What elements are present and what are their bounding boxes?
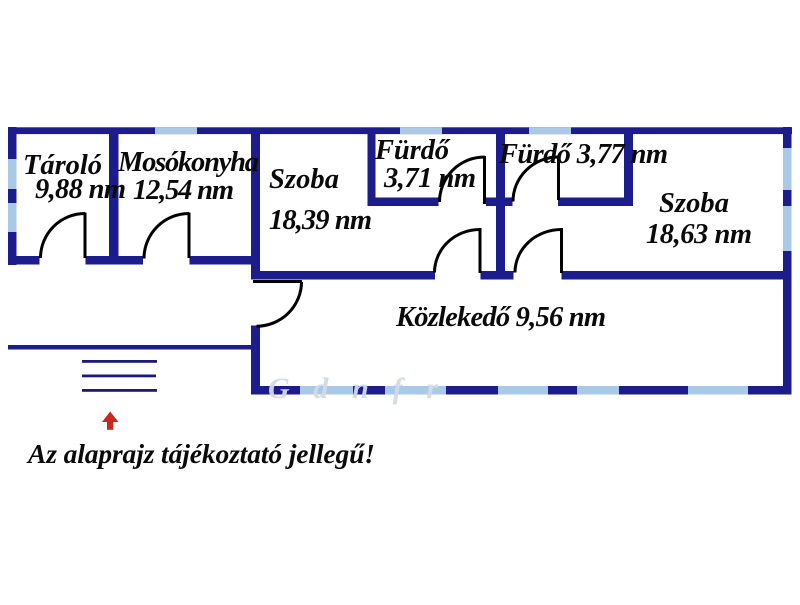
svg-text:12,54 nm: 12,54 nm <box>133 175 234 206</box>
svg-text:Fürdő: Fürdő <box>374 135 451 166</box>
svg-text:9,88 nm: 9,88 nm <box>35 174 126 205</box>
svg-text:18,63 nm: 18,63 nm <box>646 219 752 250</box>
svg-text:Fürdő 3,77 nm: Fürdő 3,77 nm <box>498 139 668 170</box>
svg-text:Az alaprajz tájékoztató jelleg: Az alaprajz tájékoztató jellegű! <box>26 438 375 469</box>
svg-text:3,71 nm: 3,71 nm <box>383 163 476 194</box>
svg-text:Szoba: Szoba <box>269 164 339 195</box>
svg-text:Közlekedő 9,56 nm: Közlekedő 9,56 nm <box>395 302 606 333</box>
svg-text:Szoba: Szoba <box>659 188 729 219</box>
svg-text:18,39 nm: 18,39 nm <box>269 205 372 236</box>
svg-text:Mosókonyha: Mosókonyha <box>117 147 259 178</box>
